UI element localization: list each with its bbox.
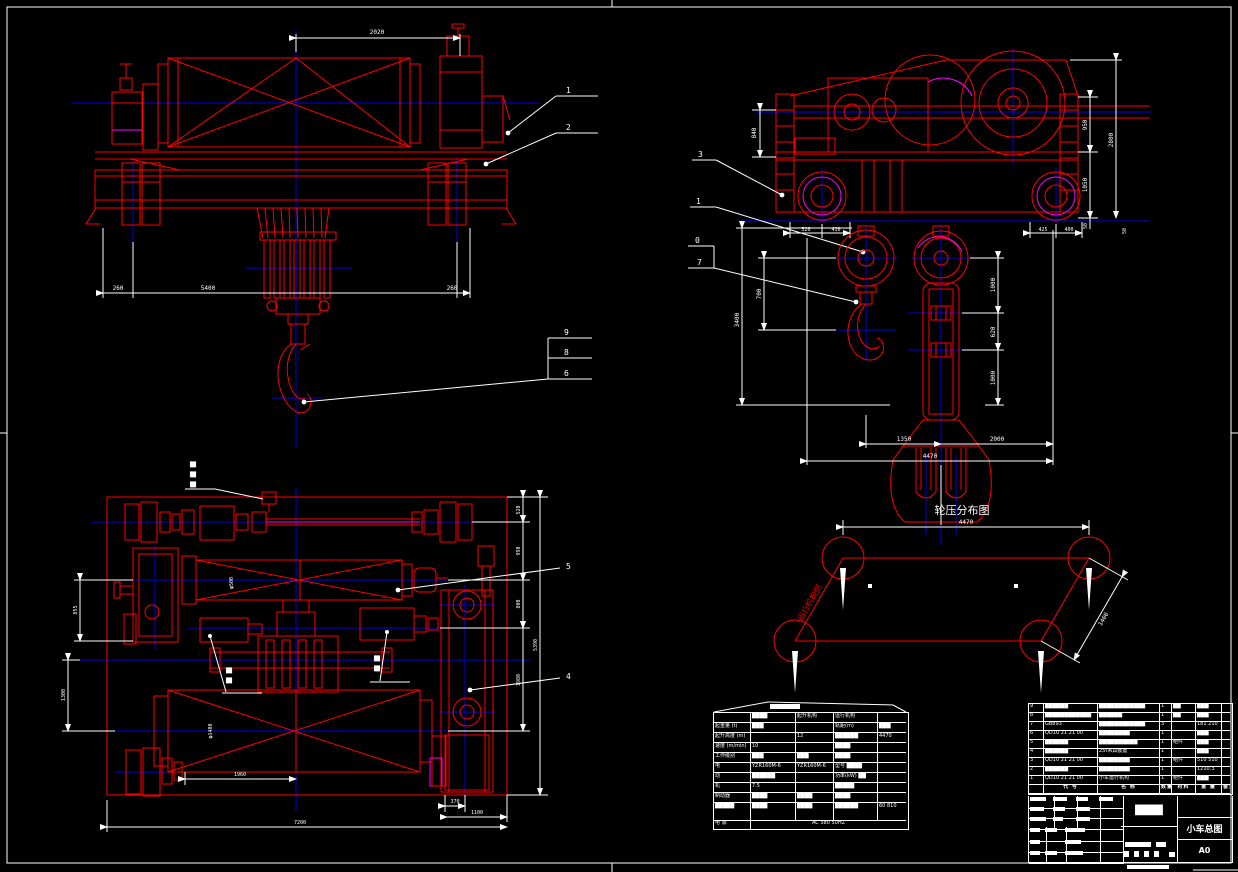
bom-row: 3QD10 21 21 00████████1组件510 510	[1029, 758, 1232, 767]
wheel-diagram-title: 轮压分布图	[935, 503, 990, 517]
spec-cell: ███	[751, 723, 796, 733]
bom-mat: 组件	[1172, 758, 1196, 767]
spec-cell: YZR160M-6	[751, 763, 796, 773]
dim-hook-1350: 1350	[897, 436, 912, 443]
central-sheave-cluster	[210, 600, 392, 692]
spec-cell: ████	[796, 803, 834, 821]
plan-note-1c: ██	[189, 481, 197, 488]
title-block-signature-grid	[1029, 796, 1121, 862]
project-name-cell: ████	[1121, 796, 1177, 827]
bom-code: ██████	[1044, 704, 1098, 713]
bom-wt: 1210.3	[1196, 767, 1222, 776]
mid-motors	[200, 608, 438, 642]
spec-cell: 4470	[878, 733, 906, 743]
spec-cell: ██████	[834, 803, 878, 821]
bom-header-mat: 材料	[1172, 785, 1196, 794]
dim-plan-520: 520	[516, 505, 522, 514]
dim-side-425: 425	[1038, 227, 1047, 233]
bom-rm	[1222, 731, 1230, 740]
left-bearing-stand	[112, 64, 158, 150]
bom-code: ████████████	[1044, 713, 1098, 722]
dim-hook-1000b: 1000	[990, 370, 997, 385]
dim-side-50b: 50	[1122, 228, 1128, 234]
bom-mat	[1172, 722, 1196, 731]
dim-hook-4470: 4470	[923, 453, 938, 460]
balloon-4: 4	[566, 672, 571, 681]
bom-qty: 1	[1160, 740, 1172, 749]
bom-rm	[1222, 740, 1230, 749]
wheel-pressure-diagram: 轮压分布图 4470 1400 运行机构侧	[774, 503, 1128, 693]
dim-plan-drum1: φ500	[229, 577, 235, 589]
plan-note-1: ██	[189, 461, 197, 468]
plan-note-1b: ██	[189, 471, 197, 478]
spec-cell	[878, 763, 906, 773]
bom-code: ██████	[1044, 767, 1098, 776]
force-arrow-2	[1086, 568, 1092, 610]
force-arrow-3	[792, 651, 798, 693]
balloon-1: 1	[566, 86, 571, 95]
plan-view-balloons: 5 4 ██ ██ ██ ██ ██ ██ ██	[185, 461, 571, 693]
dim-plan-1300: 1300	[61, 689, 67, 701]
cad-drawing-sheet: 2020 260 5400 260 1 2 9	[0, 0, 1238, 872]
bom-row: 8██████████████████1█████	[1029, 713, 1232, 722]
bom-seq: 4	[1029, 749, 1044, 758]
dim-plan-855: 855	[73, 605, 79, 614]
dim-plan-800: 800	[516, 599, 522, 608]
balloon-5: 5	[566, 562, 571, 571]
dim-plan-7200: 7200	[294, 820, 306, 826]
bom-header-wt: 重 量	[1196, 785, 1222, 794]
bom-qty: 1	[1160, 749, 1172, 758]
spec-cell: 电	[714, 763, 751, 773]
spec-cell	[878, 753, 906, 763]
spec-cell: ██████	[834, 733, 878, 743]
bom-code: QD10 21 21 00	[1044, 758, 1098, 767]
spec-cell: █████	[834, 783, 878, 793]
bom-row: 9██████████████████1█████	[1029, 704, 1232, 713]
dim-side-840: 840	[751, 127, 758, 138]
spec-cell: ████	[834, 743, 878, 753]
bom-mat: ██	[1172, 704, 1196, 713]
bom-name: ██████████	[1098, 740, 1160, 749]
bom-rm	[1222, 776, 1230, 785]
bom-wt: ███	[1196, 776, 1222, 785]
dim-plan-370: 370	[450, 799, 459, 805]
bom-code: QD10 21 21 00	[1044, 731, 1098, 740]
spec-cell: █████	[714, 803, 751, 821]
bom-name: ████████	[1098, 767, 1160, 776]
spec-cell: ███	[796, 753, 834, 763]
spec-cell: 功率(kW) ██	[834, 773, 878, 783]
spec-cell: 7.5	[751, 783, 796, 793]
plan-note-2: ██	[225, 667, 233, 674]
title-block-empty-cell	[1177, 796, 1232, 818]
hoist-motor	[440, 24, 510, 148]
plan-note-3: ██	[373, 655, 381, 662]
bom-rm	[1222, 722, 1230, 731]
bom-mat	[1172, 767, 1196, 776]
title-block: ████ 小车总图 A0	[1028, 796, 1233, 863]
dim-side-1050: 1050	[1082, 177, 1089, 192]
spec-cell: 运行机构	[834, 713, 878, 723]
trolley-frame	[86, 152, 516, 225]
bom-qty: 3	[1160, 722, 1172, 731]
bom-row: 1QD10 21 21 00小车运行机构1组件███	[1029, 776, 1232, 785]
bom-seq: 2	[1029, 767, 1044, 776]
side-view: 840 950 1050 50 2800 520 410 425 400	[688, 48, 1152, 304]
bom-wt: ███	[1196, 749, 1222, 758]
dim-side-950: 950	[1082, 119, 1089, 130]
dim-plan-drum2: φ1400	[208, 723, 214, 738]
balloon-9: 9	[564, 328, 569, 337]
bom-qty: 1	[1160, 731, 1172, 740]
spec-cell: 起重量 (t)	[714, 723, 751, 733]
balloon-7: 7	[697, 258, 702, 267]
bom-wt: ███	[1196, 731, 1222, 740]
bom-wt: ███	[1196, 740, 1222, 749]
bom-code: GB893	[1044, 722, 1098, 731]
bom-rm	[1222, 713, 1230, 722]
spec-table-roof	[714, 702, 906, 712]
front-view: 2020 260 5400 260 1 2 9	[72, 24, 598, 448]
right-gearbox	[430, 546, 494, 792]
bom-name: ██████	[1098, 713, 1160, 722]
dim-wheel-4470: 4470	[959, 519, 974, 526]
bom-row: 4██████25t吊具装置1███	[1029, 749, 1232, 758]
bom-mat	[1172, 749, 1196, 758]
bom-seq: 3	[1029, 758, 1044, 767]
bom-wt: ███	[1196, 713, 1222, 722]
bom-name: 小车运行机构	[1098, 776, 1160, 785]
spec-cell: ████	[834, 793, 878, 803]
bom-rm	[1222, 749, 1230, 758]
balloon-3: 3	[698, 150, 703, 159]
spec-cell: 起升机构	[796, 713, 834, 723]
dim-plan-5390: 5390	[533, 639, 539, 651]
bom-mat: 组件	[1172, 740, 1196, 749]
bom-header-row: 代 号名 称数量材料重 量备注	[1029, 785, 1232, 794]
plan-view-dimensions: 520 990 800 1980 5390 855 1300 1960 370 …	[61, 497, 548, 832]
bom-row: 5████████████████1组件███	[1029, 740, 1232, 749]
spec-cell	[796, 773, 834, 783]
bom-wt: 510 510	[1196, 758, 1222, 767]
balloon-2: 2	[566, 123, 571, 132]
bom-header-name: 名 称	[1098, 785, 1160, 794]
bom-name: ████████████	[1098, 704, 1160, 713]
bom-header-qty: 数量	[1160, 785, 1172, 794]
spec-cell: 60 810	[878, 803, 906, 821]
hook-view-dimensions: 3400 700 1000 620 1000 1350 2000 4470	[734, 228, 1053, 525]
balloon-6: 6	[564, 369, 569, 378]
spec-power-value: AC 380 50HZ	[751, 820, 906, 829]
spec-cell: 速度 (m/min)	[714, 743, 751, 753]
spec-cell: ███	[878, 723, 906, 733]
left-gearbox	[114, 548, 178, 644]
plan-note-2b: ██	[225, 677, 233, 684]
spec-cell	[714, 713, 751, 723]
force-arrow-1	[840, 568, 846, 610]
bom-seq: 5	[1029, 740, 1044, 749]
side-machinery	[776, 51, 1150, 220]
force-arrow-4	[1038, 651, 1044, 693]
dim-front-top: 2020	[370, 29, 385, 36]
bom-table: 9██████████████████1█████ 8█████████████…	[1028, 703, 1233, 795]
spec-cell	[878, 713, 906, 723]
bom-name: ████████	[1098, 731, 1160, 740]
bom-name: ████████	[1098, 758, 1160, 767]
dim-hook-1000a: 1000	[990, 277, 997, 292]
bom-name: 25t吊具装置	[1098, 749, 1160, 758]
spec-table: ████起升机构运行机构 起重量 (t)███轨距(m)███ 起升高度 (m)…	[713, 712, 909, 830]
bom-row: 7GB893████████████3181 210	[1029, 722, 1232, 731]
spec-cell	[751, 733, 796, 743]
spec-cell: YZR160M-6	[796, 763, 834, 773]
bom-mat: 组件	[1172, 776, 1196, 785]
dim-hook-2000: 2000	[990, 436, 1005, 443]
spec-cell: ████	[796, 793, 834, 803]
dim-side-2800: 2800	[1108, 132, 1115, 147]
spec-cell: ████	[751, 713, 796, 723]
spec-cell: 10	[751, 743, 796, 753]
spec-cell: 轨距(m)	[834, 723, 878, 733]
bom-header-code: 代 号	[1044, 785, 1098, 794]
bom-qty: 1	[1160, 758, 1172, 767]
spec-cell: ████	[834, 753, 878, 763]
spec-cell	[878, 783, 906, 793]
spec-power-label: 电 源	[714, 820, 751, 829]
dim-wheel-diag: 1400	[1097, 611, 1110, 627]
bom-qty: 1	[1160, 713, 1172, 722]
bom-wt: ███	[1196, 704, 1222, 713]
bom-qty: 1	[1160, 704, 1172, 713]
bom-code: ██████	[1044, 740, 1098, 749]
spec-cell	[796, 743, 834, 753]
spec-cell	[796, 723, 834, 733]
front-view-balloons: 1 2 9 8 6	[302, 86, 598, 404]
bom-code: QD10 21 21 00	[1044, 776, 1098, 785]
spec-cell	[796, 783, 834, 793]
title-block-midcol: ████	[1121, 796, 1178, 862]
lower-drum	[126, 690, 446, 796]
dim-side-50a: 50	[1083, 223, 1089, 229]
spec-cell	[878, 793, 906, 803]
bom-rm	[1222, 758, 1230, 767]
spec-cell: 制动器	[714, 793, 751, 803]
balloon-8: 8	[564, 348, 569, 357]
bom-seq: 1	[1029, 776, 1044, 785]
spec-cell: 机	[714, 783, 751, 793]
bom-qty: 1	[1160, 776, 1172, 785]
sheet-size: A0	[1177, 840, 1232, 861]
bom-rm	[1222, 767, 1230, 776]
dim-hook-620: 620	[990, 326, 997, 337]
dim-hook-700: 700	[756, 288, 763, 299]
balloon-1b: 1	[696, 197, 701, 206]
plan-note-3b: ██	[373, 665, 381, 672]
bom-seq: 9	[1029, 704, 1044, 713]
bom-name: ████████████	[1098, 722, 1160, 731]
spec-cell: 动	[714, 773, 751, 783]
bom-row: 2██████████████11210.3	[1029, 767, 1232, 776]
bom-header	[1029, 785, 1044, 794]
plan-view: 520 990 800 1980 5390 855 1300 1960 370 …	[61, 461, 571, 832]
dim-front-right: 260	[447, 285, 458, 292]
dim-plan-1960: 1960	[234, 772, 246, 778]
bom-mat	[1172, 731, 1196, 740]
spec-cell: ████	[751, 793, 796, 803]
bom-mat: ██	[1172, 713, 1196, 722]
dim-plan-1100: 1100	[471, 810, 483, 816]
side-view-dimensions: 840 950 1050 50 2800 520 410 425 400	[751, 60, 1128, 238]
spec-cell	[878, 743, 906, 753]
bom-seq: 7	[1029, 722, 1044, 731]
spec-cell: 型号 ████	[834, 763, 878, 773]
title-block-rightcol: 小车总图 A0	[1177, 796, 1232, 862]
dim-front-left: 260	[113, 285, 124, 292]
dim-plan-990: 990	[516, 546, 522, 555]
spec-cell: ██████	[751, 773, 796, 783]
drawing-title: 小车总图	[1177, 818, 1232, 840]
bom-wt: 181 210	[1196, 722, 1222, 731]
bom-rm	[1222, 704, 1230, 713]
bom-seq: 8	[1029, 713, 1044, 722]
spec-cell: 工作级别	[714, 753, 751, 763]
dim-front-mid: 5400	[201, 285, 216, 292]
spec-cell: 起升高度 (m)	[714, 733, 751, 743]
spec-cell: 12	[796, 733, 834, 743]
spec-cell: ███	[751, 753, 796, 763]
bom-header-rm: 备注	[1222, 785, 1230, 794]
dim-side-400: 400	[1064, 227, 1073, 233]
bom-qty: 1	[1160, 767, 1172, 776]
travel-shaft-line	[125, 492, 472, 542]
dim-hook-3400: 3400	[734, 312, 741, 327]
hook-assembly-view: 3400 700 1000 620 1000 1350 2000 4470	[734, 225, 1053, 545]
balloon-0: 0	[695, 236, 700, 245]
bom-code: ██████	[1044, 749, 1098, 758]
bom-row: 6QD10 21 21 00████████1███	[1029, 731, 1232, 740]
spec-cell: ████	[751, 803, 796, 821]
bom-seq: 6	[1029, 731, 1044, 740]
spec-cell	[878, 773, 906, 783]
